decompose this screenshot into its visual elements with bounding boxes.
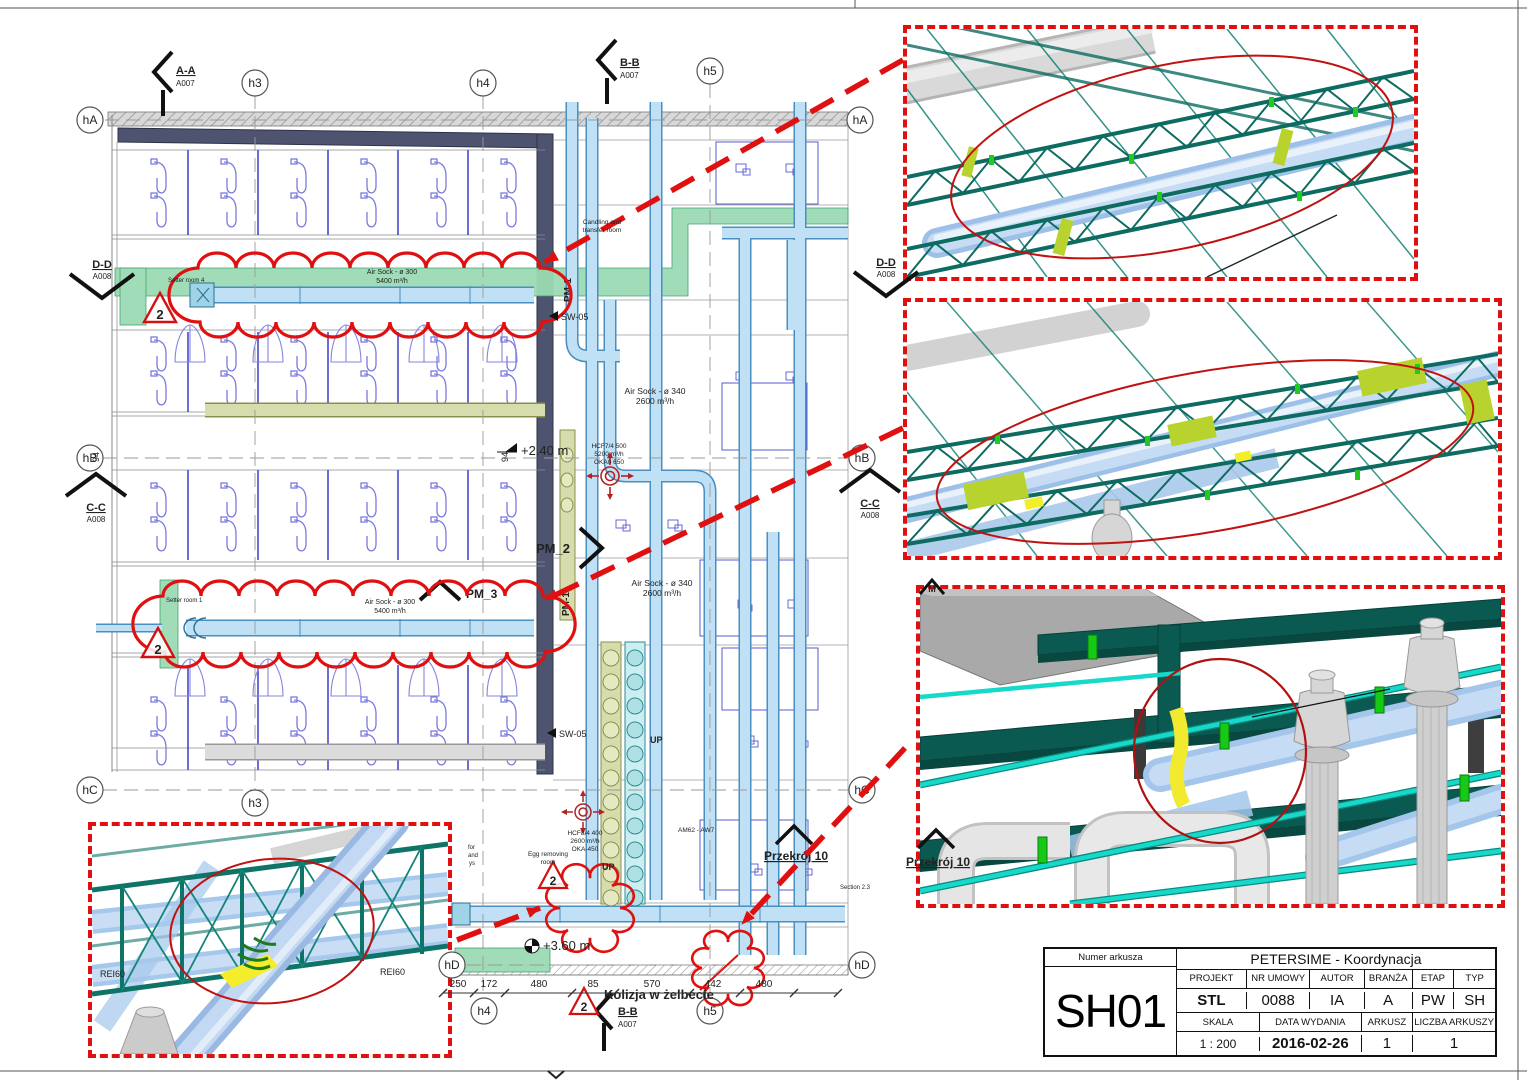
fan2-label-3: OKA-450 — [572, 846, 599, 853]
grid-bubble-h3-top: h3 — [248, 76, 262, 90]
svg-text:2: 2 — [550, 874, 557, 888]
detail-inset-bottom-right — [916, 585, 1505, 908]
svg-text:A008: A008 — [861, 511, 880, 520]
value-branza: A — [1365, 992, 1413, 1009]
fan-symbol-2 — [561, 790, 605, 834]
fan2-label-1: HCF8/4 400 — [567, 830, 602, 837]
section-marker-PM2: PM_2 — [536, 528, 602, 568]
value-etap: PW — [1413, 992, 1455, 1009]
grid-bubble-hA-left: hA — [83, 113, 98, 127]
warning-triangle-2: 2 — [142, 628, 174, 657]
dim-480b: 480 — [756, 979, 773, 990]
grid-bubble-hB-right: hB — [855, 451, 870, 465]
header-branza: BRANŻA — [1365, 970, 1413, 989]
drawing-sheet: REI60 REI60 — [0, 0, 1527, 1080]
fan2-label-2: 2600 m³/h — [570, 838, 600, 845]
revision-cloud-upper — [169, 253, 571, 337]
svg-text:D-D: D-D — [876, 257, 896, 269]
section-marker-BB-bottom: B-B A007 — [596, 993, 638, 1051]
am62-label: AM62 - AW7 — [678, 827, 715, 834]
fan-symbol-1 — [586, 452, 634, 500]
warning-triangle-1: 2 — [144, 293, 176, 322]
grid-bubble-hD-right: hD — [854, 958, 870, 972]
detail-inset-middle-right — [903, 298, 1502, 560]
sheet-number: SH01 — [1045, 967, 1176, 1055]
svg-text:B-B: B-B — [620, 57, 640, 69]
title-block: Numer arkusza SH01 PETERSIME - Koordynac… — [1043, 947, 1497, 1057]
svg-text:Przekrój 10: Przekrój 10 — [764, 849, 828, 863]
setter-room-1-label: Setter room 1 — [166, 598, 203, 604]
value-liczba-arkuszy: 1 — [1413, 1035, 1495, 1052]
dim-570: 570 — [644, 979, 661, 990]
inset-middle-right-3d-view — [907, 302, 1498, 556]
leader-to-upper-cloud — [545, 60, 903, 262]
dimension-string: 250 172 480 85 570 442 480 — [439, 979, 842, 997]
svg-text:SW-05: SW-05 — [559, 729, 586, 739]
airsock300-lower-line2: 5400 m³/h — [374, 608, 406, 615]
section-marker-DD-left: D-D A008 — [70, 259, 134, 298]
airsock340-lower-line1: Air Sock - ø 340 — [632, 578, 693, 588]
header-projekt: PROJEKT — [1177, 970, 1247, 989]
airsock340-lower-line2: 2600 m³/h — [643, 588, 682, 598]
candling-room-line2: transfer room — [583, 227, 622, 234]
grid-bubble-h4-bottom: h4 — [477, 1004, 491, 1018]
blue-duct-back-diagonal — [102, 866, 212, 1026]
section23-label: Section 2.3 — [840, 885, 871, 891]
up-label-1: UP — [650, 735, 663, 745]
value-projekt: STL — [1177, 992, 1247, 1009]
value-arkusz: 1 — [1362, 1035, 1413, 1052]
setter-fixtures — [151, 159, 516, 765]
yellow-highlight — [1176, 709, 1184, 805]
level-360: +3.60 m — [525, 938, 590, 953]
fan1-label-1: HCF7/4 500 — [591, 443, 626, 450]
svg-text:2: 2 — [581, 1000, 588, 1014]
section-marker-AA-top: A-A A007 — [154, 52, 196, 116]
svg-text:+3.60 m: +3.60 m — [543, 938, 590, 953]
leader-from-bottom-left-inset — [457, 908, 540, 940]
rei60-label-right: REI60 — [380, 967, 405, 977]
small-cloud-kolizja — [692, 931, 764, 1005]
dim-172: 172 — [481, 979, 498, 990]
title-block-right: PETERSIME - Koordynacja PROJEKT NR UMOWY… — [1177, 949, 1495, 1055]
up-label-2: UP — [602, 862, 615, 872]
dark-bracket-right — [1468, 717, 1484, 773]
title-block-left: Numer arkusza SH01 — [1045, 949, 1177, 1055]
header-typ: TYP — [1454, 970, 1495, 989]
svg-text:+2.40 m: +2.40 m — [521, 443, 568, 458]
leader-to-lower-cloud — [545, 428, 903, 600]
egg-room-line1: Egg removing — [528, 851, 568, 858]
revision-cloud-lower — [133, 581, 575, 667]
header-skala: SKALA — [1177, 1013, 1260, 1032]
header-data-wydania: DATA WYDANIA — [1260, 1013, 1362, 1032]
airsock340-upper-line2: 2600 m³/h — [636, 396, 675, 406]
dim-85: 85 — [587, 979, 599, 990]
grid-bubble-hC-left: hC — [82, 783, 98, 797]
grid-bubble-hB-left: hB — [83, 451, 98, 465]
svg-text:A008: A008 — [87, 515, 106, 524]
svg-text:PM_3: PM_3 — [466, 587, 498, 601]
header-autor: AUTOR — [1310, 970, 1364, 989]
grid-bubble-h4-top: h4 — [476, 76, 490, 90]
gray-cone-hopper — [120, 1007, 178, 1054]
frag-label-1: for — [468, 845, 475, 851]
value-data-wydania: 2016-02-26 — [1260, 1035, 1362, 1052]
section-marker-CC-left: C-C A008 — [66, 474, 126, 524]
dim-94-left: 94 — [91, 452, 101, 462]
grid-bubble-h5-bottom: h5 — [703, 1004, 717, 1018]
airsock300-upper-line1: Air Sock - ø 300 — [367, 269, 417, 276]
arch-fixtures — [175, 325, 517, 696]
inset-bottom-right-3d-view — [920, 589, 1501, 904]
fan1-label-2: 5200 m³/h — [594, 451, 624, 458]
value-nr-umowy: 0088 — [1247, 992, 1311, 1009]
dark-brace — [1207, 215, 1337, 277]
pm1-label-lower: PM-1 — [561, 592, 572, 616]
fan1-label-3: OKA0 650 — [594, 459, 624, 466]
section-marker-przekroj10-left: Przekrój 10 — [764, 826, 828, 863]
detail-inset-top-right — [903, 25, 1418, 281]
header-etap: ETAP — [1413, 970, 1455, 989]
section-marker-BB-top: B-B A007 — [598, 40, 640, 104]
setter-room-4-label: Setter room 4 — [168, 278, 205, 284]
numer-arkusza-label: Numer arkusza — [1045, 949, 1176, 967]
svg-text:A007: A007 — [618, 1020, 637, 1029]
svg-text:A008: A008 — [877, 270, 896, 279]
svg-text:A-A: A-A — [176, 65, 196, 77]
header-liczba-arkuszy: LICZBA ARKUSZY — [1413, 1013, 1495, 1032]
grid-bubble-hC-right: hC — [854, 783, 870, 797]
grid-bubble-hA-right: hA — [853, 113, 868, 127]
svg-text:C-C: C-C — [86, 502, 106, 514]
airsock300-lower-line1: Air Sock - ø 300 — [365, 599, 415, 606]
warning-triangle-4: 2 — [570, 988, 598, 1014]
svg-text:2: 2 — [154, 642, 161, 657]
level-240: +2.40 m — [497, 443, 568, 458]
value-typ: SH — [1454, 992, 1495, 1009]
inset-top-right-3d-view — [907, 29, 1414, 277]
machine-glyphs — [616, 164, 812, 875]
section-marker-PM3: PM_3 — [420, 582, 498, 601]
svg-text:B-B: B-B — [618, 1006, 638, 1018]
inset-bottom-left-3d-view: REI60 REI60 — [92, 826, 448, 1054]
rei60-label-left: REI60 — [100, 969, 125, 979]
svg-text:PM_2: PM_2 — [536, 541, 570, 556]
dim-250: 250 — [450, 979, 467, 990]
small-cloud-egg-room — [546, 864, 633, 952]
leader-to-kolizja-cloud — [742, 748, 905, 924]
frag-label-3: ys — [469, 861, 475, 867]
warning-triangle-3: 2 — [539, 862, 567, 888]
candling-room-line1: Candling and — [583, 219, 622, 226]
detail-inset-bottom-left: REI60 REI60 — [88, 822, 452, 1058]
egg-room-line2: room — [541, 859, 556, 866]
flex-duct-risers — [560, 430, 645, 906]
svg-text:A007: A007 — [176, 79, 195, 88]
misc-ducts — [205, 410, 545, 752]
airsock300-upper-line2: 5400 m³/h — [376, 278, 408, 285]
kolizja-label: Kolizja w żelbecie — [604, 987, 714, 1002]
svg-text:2: 2 — [156, 307, 163, 322]
pm1-label-upper: PM-1 — [563, 278, 574, 302]
dim-480a: 480 — [531, 979, 548, 990]
white-elbow-ducts — [956, 829, 1252, 904]
svg-text:C-C: C-C — [860, 498, 880, 510]
header-nr-umowy: NR UMOWY — [1247, 970, 1311, 989]
value-skala: 1 : 200 — [1177, 1037, 1260, 1051]
svg-text:SW-05: SW-05 — [561, 312, 588, 322]
svg-text:D-D: D-D — [92, 259, 112, 271]
svg-text:A008: A008 — [93, 272, 112, 281]
grid-bubble-h5-top: h5 — [703, 64, 717, 78]
airsock340-upper-line1: Air Sock - ø 340 — [625, 386, 686, 396]
sw05-label-upper: SW-05 — [549, 311, 588, 322]
value-autor: IA — [1310, 992, 1364, 1009]
sw05-label-lower: SW-05 — [547, 728, 586, 739]
dim-442: 442 — [705, 979, 722, 990]
section-marker-CC-right: C-C A008 — [840, 470, 900, 520]
dim-94-mid: 94 — [500, 452, 510, 462]
project-title: PETERSIME - Koordynacja — [1177, 949, 1495, 970]
svg-text:A007: A007 — [620, 71, 639, 80]
grid-bubble-h3-bottom: h3 — [248, 796, 262, 810]
header-arkusz: ARKUSZ — [1362, 1013, 1413, 1032]
frag-label-2: and — [468, 853, 478, 859]
